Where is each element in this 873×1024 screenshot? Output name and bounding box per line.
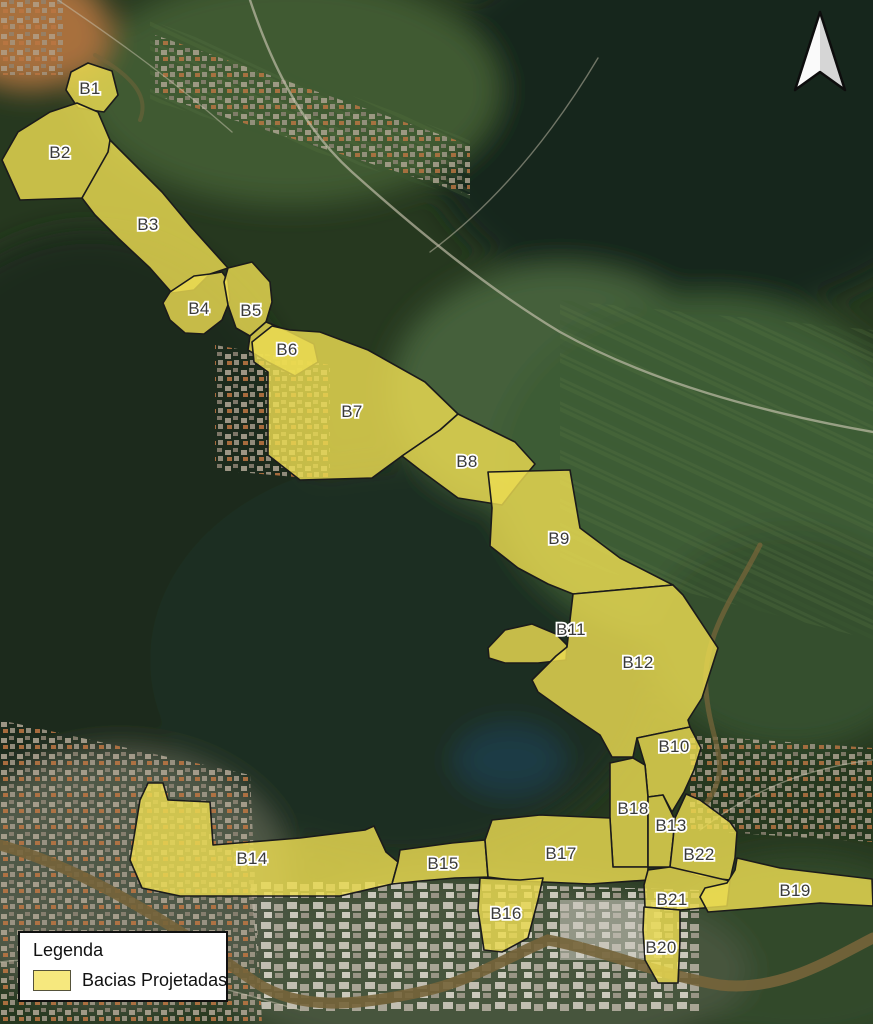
basin-b16-label: B16 <box>490 904 521 923</box>
basin-b2-label: B2 <box>49 143 70 162</box>
basin-b21-label: B21 <box>656 890 687 909</box>
legend-item-bacias: Bacias Projetadas <box>33 970 216 991</box>
basin-b22-label: B22 <box>683 845 714 864</box>
basin-b9-label: B9 <box>548 529 569 548</box>
legend-item-label: Bacias Projetadas <box>82 970 227 991</box>
basin-b5-label: B5 <box>240 301 261 320</box>
map-viewport: B1 B2 B3 B4 B5 B6 B7 B8 B9 B10 B11 B12 B… <box>0 0 873 1024</box>
basin-b8-label: B8 <box>456 452 477 471</box>
basin-b11-label: B11 <box>556 620 586 639</box>
basin-b18-label: B18 <box>617 799 648 818</box>
basin-b4-label: B4 <box>188 299 209 318</box>
basin-b14-label: B14 <box>236 849 267 868</box>
basin-b10-label: B10 <box>658 737 689 756</box>
satellite-map: B1 B2 B3 B4 B5 B6 B7 B8 B9 B10 B11 B12 B… <box>0 0 873 1024</box>
legend-title: Legenda <box>33 940 216 961</box>
basin-b19-label: B19 <box>779 881 810 900</box>
basin-b13-label: B13 <box>655 816 686 835</box>
basin-b7-label: B7 <box>341 402 362 421</box>
basin-b17-label: B17 <box>545 844 576 863</box>
basin-b20-label: B20 <box>645 938 676 957</box>
basin-b1-label: B1 <box>79 79 100 98</box>
legend-swatch-bacias-projetadas <box>33 970 71 991</box>
legend: Legenda Bacias Projetadas <box>18 931 228 1002</box>
basin-b12-label: B12 <box>622 653 653 672</box>
basin-b6-label: B6 <box>276 340 297 359</box>
basin-b3-label: B3 <box>137 215 158 234</box>
basin-b15-label: B15 <box>427 854 458 873</box>
